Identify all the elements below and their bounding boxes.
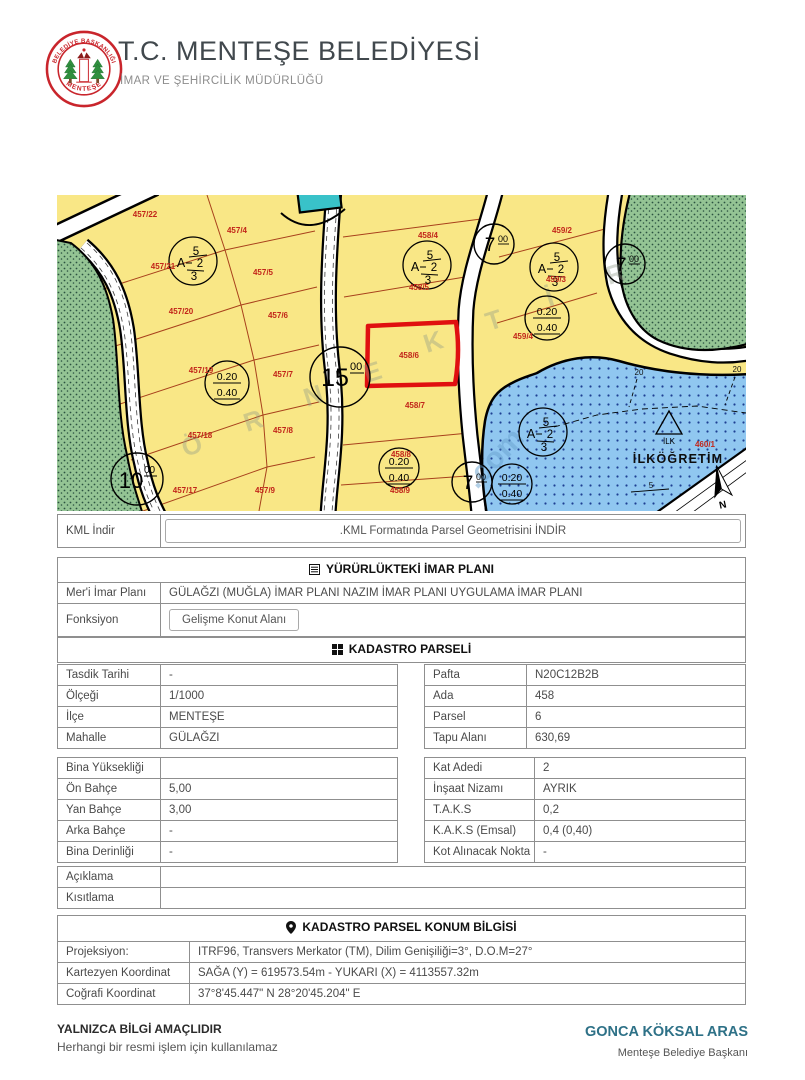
mayor-title: Menteşe Belediye Başkanı bbox=[618, 1047, 748, 1059]
row-value: 3,00 bbox=[161, 800, 398, 821]
svg-text:5: 5 bbox=[649, 481, 654, 490]
svg-text:460/1: 460/1 bbox=[695, 440, 716, 449]
svg-text:00: 00 bbox=[498, 234, 508, 244]
disclaimer-title: YALNIZCA BİLGİ AMAÇLIDIR bbox=[57, 1022, 222, 1036]
svg-text:458/7: 458/7 bbox=[405, 401, 426, 410]
page: BELEDİYE BAŞKANLIĞI MENTEŞE T.C. MENTEŞE… bbox=[0, 0, 805, 1080]
page-subtitle: İMAR VE ŞEHİRCİLİK MÜDÜRLÜĞÜ bbox=[120, 75, 324, 87]
svg-text:458/6: 458/6 bbox=[399, 351, 420, 360]
grid-icon bbox=[332, 644, 343, 655]
mayor-name: GONCA KÖKSAL ARAS bbox=[585, 1024, 748, 1040]
svg-text:7: 7 bbox=[485, 235, 496, 256]
svg-text:459/2: 459/2 bbox=[552, 226, 573, 235]
row-value: - bbox=[161, 821, 398, 842]
kml-label: KML İndir bbox=[58, 515, 161, 548]
svg-text:457/6: 457/6 bbox=[268, 311, 289, 320]
row-label: Bina Yüksekliği bbox=[58, 758, 161, 779]
svg-text:457/5: 457/5 bbox=[253, 268, 274, 277]
row-label: İnşaat Nizamı bbox=[425, 779, 535, 800]
zoning-params-right: Kat Adedi2 İnşaat NizamıAYRIK T.A.K.S0,2… bbox=[424, 757, 746, 863]
svg-text:0.40: 0.40 bbox=[537, 322, 558, 334]
imar-plani-header: YÜRÜRLÜKTEKİ İMAR PLANI bbox=[309, 562, 494, 576]
row-label: T.A.K.S bbox=[425, 800, 535, 821]
kadastro-header-table: KADASTRO PARSELİ bbox=[57, 637, 746, 663]
svg-text:20: 20 bbox=[733, 365, 742, 374]
row-label: Ön Bahçe bbox=[58, 779, 161, 800]
zoning-params-left: Bina Yüksekliği Ön Bahçe5,00 Yan Bahçe3,… bbox=[57, 757, 398, 863]
svg-text:2: 2 bbox=[197, 258, 203, 270]
row-value: - bbox=[161, 842, 398, 863]
konum-header: KADASTRO PARSEL KONUM BİLGİSİ bbox=[286, 920, 516, 934]
fonksiyon-label: Fonksiyon bbox=[58, 603, 161, 636]
svg-text:457/19: 457/19 bbox=[189, 366, 214, 375]
svg-text:İLK: İLK bbox=[663, 437, 676, 446]
row-label: Pafta bbox=[425, 665, 527, 686]
row-label: Kartezyen Koordinat bbox=[58, 962, 190, 983]
meri-plan-label: Mer'i İmar Planı bbox=[58, 582, 161, 603]
kadastro-header: KADASTRO PARSELİ bbox=[332, 642, 471, 656]
location-pin-icon bbox=[286, 921, 296, 934]
row-value: 5,00 bbox=[161, 779, 398, 800]
row-label: Tasdik Tarihi bbox=[58, 665, 161, 686]
row-label: Açıklama bbox=[58, 867, 161, 888]
svg-text:3: 3 bbox=[191, 271, 197, 283]
svg-text:459/3: 459/3 bbox=[546, 275, 567, 284]
svg-text:0.40: 0.40 bbox=[502, 488, 523, 500]
svg-text:458/4: 458/4 bbox=[418, 231, 439, 240]
row-value: 0,4 (0,40) bbox=[535, 821, 746, 842]
row-value: - bbox=[535, 842, 746, 863]
row-label: İlçe bbox=[58, 707, 161, 728]
svg-text:3: 3 bbox=[541, 442, 547, 454]
svg-text:457/20: 457/20 bbox=[169, 307, 194, 316]
kml-table: KML İndir .KML Formatında Parsel Geometr… bbox=[57, 514, 746, 548]
svg-text:15: 15 bbox=[321, 364, 349, 392]
row-value: SAĞA (Y) = 619573.54m - YUKARI (X) = 411… bbox=[190, 962, 746, 983]
row-value: MENTEŞE bbox=[161, 707, 398, 728]
svg-text:00: 00 bbox=[350, 361, 362, 373]
svg-text:457/7: 457/7 bbox=[273, 370, 294, 379]
svg-text:A: A bbox=[411, 260, 420, 274]
row-label: Ölçeği bbox=[58, 686, 161, 707]
svg-text:00: 00 bbox=[144, 465, 156, 476]
row-value: 1/1000 bbox=[161, 686, 398, 707]
svg-text:10: 10 bbox=[119, 468, 143, 493]
row-value: ITRF96, Transvers Merkator (TM), Dilim G… bbox=[190, 941, 746, 962]
svg-text:A: A bbox=[538, 262, 547, 276]
row-value: - bbox=[161, 665, 398, 686]
row-value bbox=[161, 888, 746, 909]
svg-text:457/9: 457/9 bbox=[255, 486, 276, 495]
svg-text:2: 2 bbox=[547, 429, 553, 441]
svg-text:A: A bbox=[527, 427, 536, 441]
parcel-map[interactable]: Ö R N E K T İ R .com 5A23 5A23 5A23 5A23… bbox=[57, 195, 746, 511]
notes-table: Açıklama Kısıtlama bbox=[57, 866, 746, 909]
svg-text:0.40: 0.40 bbox=[217, 387, 238, 399]
svg-text:0.20: 0.20 bbox=[502, 472, 523, 484]
municipality-logo: BELEDİYE BAŞKANLIĞI MENTEŞE bbox=[45, 30, 123, 108]
row-label: Projeksiyon: bbox=[58, 941, 190, 962]
row-label: K.A.K.S (Emsal) bbox=[425, 821, 535, 842]
konum-table: KADASTRO PARSEL KONUM BİLGİSİ Projeksiyo… bbox=[57, 915, 746, 1005]
kadastro-info-right: PaftaN20C12B2B Ada458 Parsel6 Tapu Alanı… bbox=[424, 664, 746, 749]
row-label: Tapu Alanı bbox=[425, 728, 527, 749]
row-value: N20C12B2B bbox=[527, 665, 746, 686]
row-label: Arka Bahçe bbox=[58, 821, 161, 842]
row-label: Bina Derinliği bbox=[58, 842, 161, 863]
svg-text:7: 7 bbox=[616, 255, 627, 276]
row-label: Yan Bahçe bbox=[58, 800, 161, 821]
document-icon bbox=[309, 564, 320, 575]
svg-text:457/18: 457/18 bbox=[188, 431, 213, 440]
row-value: 6 bbox=[527, 707, 746, 728]
fonksiyon-button[interactable]: Gelişme Konut Alanı bbox=[169, 609, 299, 631]
row-value bbox=[161, 867, 746, 888]
kml-download-button[interactable]: .KML Formatında Parsel Geometrisini İNDİ… bbox=[165, 519, 741, 543]
svg-text:0.20: 0.20 bbox=[537, 306, 558, 318]
row-value: 630,69 bbox=[527, 728, 746, 749]
svg-text:457/22: 457/22 bbox=[133, 210, 158, 219]
svg-text:458/8: 458/8 bbox=[391, 450, 412, 459]
row-value bbox=[161, 758, 398, 779]
svg-text:457/21: 457/21 bbox=[151, 262, 176, 271]
svg-text:00: 00 bbox=[629, 254, 639, 264]
svg-text:0.40: 0.40 bbox=[389, 472, 410, 484]
page-title: T.C. MENTEŞE BELEDİYESİ bbox=[118, 36, 481, 67]
svg-text:7: 7 bbox=[463, 473, 474, 494]
svg-text:457/4: 457/4 bbox=[227, 226, 248, 235]
row-label: Kot Alınacak Nokta bbox=[425, 842, 535, 863]
kadastro-info-left: Tasdik Tarihi- Ölçeği1/1000 İlçeMENTEŞE … bbox=[57, 664, 398, 749]
svg-text:00: 00 bbox=[476, 472, 486, 482]
row-value: AYRIK bbox=[535, 779, 746, 800]
svg-text:2: 2 bbox=[431, 262, 437, 274]
svg-text:457/17: 457/17 bbox=[173, 486, 198, 495]
row-value: GÜLAĞZI bbox=[161, 728, 398, 749]
svg-text:458/9: 458/9 bbox=[390, 486, 411, 495]
row-label: Mahalle bbox=[58, 728, 161, 749]
map-green-area-topright bbox=[621, 195, 746, 350]
svg-text:0.20: 0.20 bbox=[217, 371, 238, 383]
meri-plan-value: GÜLAĞZI (MUĞLA) İMAR PLANI NAZIM İMAR PL… bbox=[161, 582, 746, 603]
svg-text:A: A bbox=[177, 256, 186, 270]
school-name: İLKÖĞRETİM bbox=[633, 451, 723, 466]
imar-plani-table: YÜRÜRLÜKTEKİ İMAR PLANI Mer'i İmar Planı… bbox=[57, 557, 746, 637]
row-value: 458 bbox=[527, 686, 746, 707]
row-label: Kat Adedi bbox=[425, 758, 535, 779]
disclaimer-text: Herhangi bir resmi işlem için kullanılam… bbox=[57, 1040, 278, 1054]
svg-text:20: 20 bbox=[635, 368, 644, 377]
row-label: Kısıtlama bbox=[58, 888, 161, 909]
svg-text:457/8: 457/8 bbox=[273, 426, 294, 435]
row-label: Ada bbox=[425, 686, 527, 707]
row-value: 2 bbox=[535, 758, 746, 779]
row-value: 37°8'45.447" N 28°20'45.204" E bbox=[190, 983, 746, 1004]
svg-text:458/5: 458/5 bbox=[409, 283, 430, 292]
row-value: 0,2 bbox=[535, 800, 746, 821]
svg-text:459/4: 459/4 bbox=[513, 332, 534, 341]
row-label: Coğrafi Koordinat bbox=[58, 983, 190, 1004]
row-label: Parsel bbox=[425, 707, 527, 728]
